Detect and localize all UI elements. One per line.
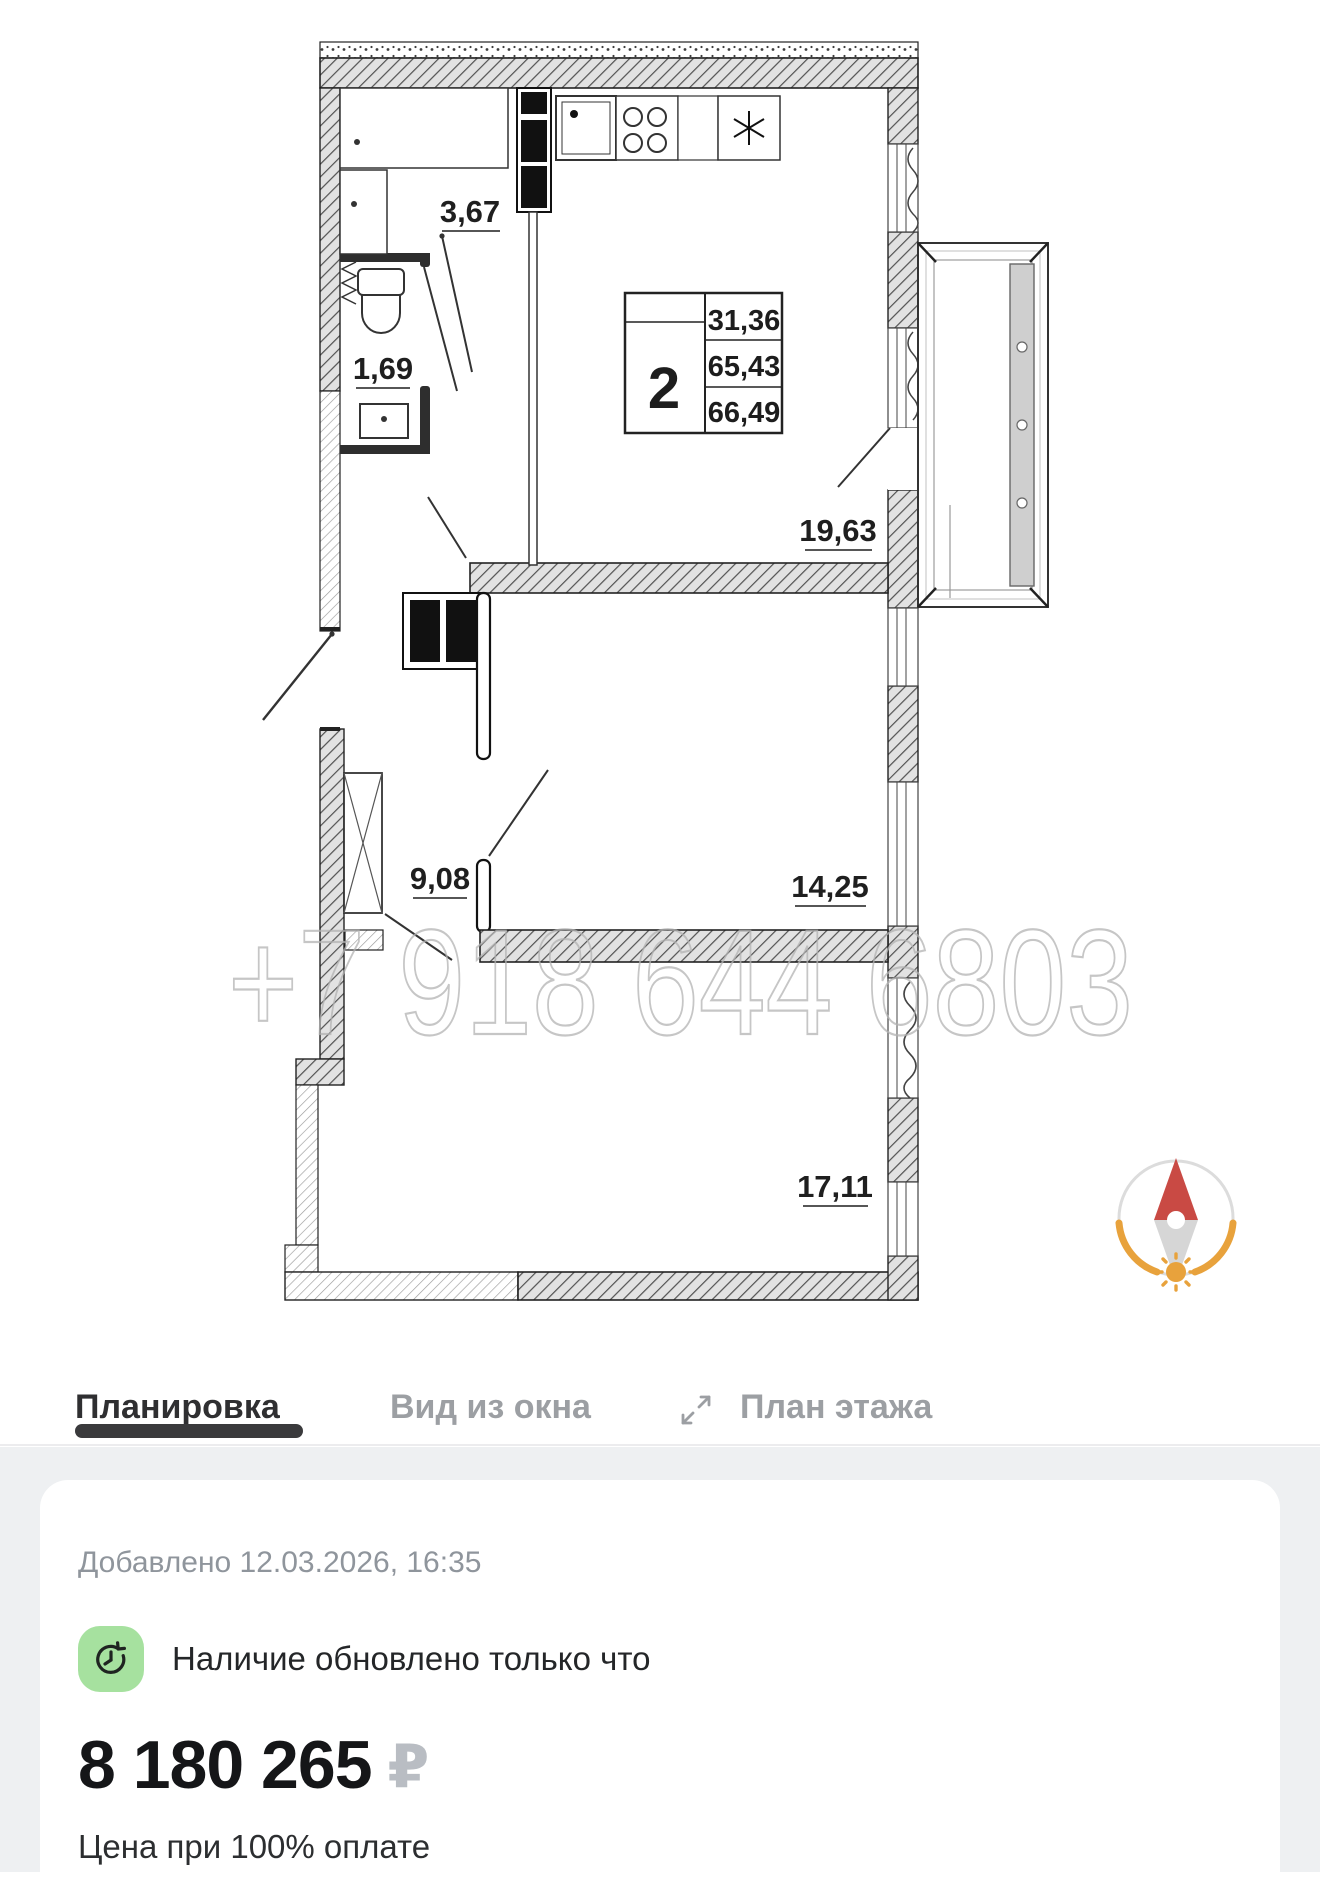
compass-icon	[1119, 1158, 1233, 1290]
price-value: 8 180 265	[78, 1732, 372, 1798]
listing-details-card: Добавлено 12.03.2026, 16:35 Наличие обно…	[40, 1480, 1280, 1880]
fridge-snowflake-icon	[718, 96, 780, 160]
balcony	[838, 243, 1048, 607]
sink-icon	[360, 404, 408, 438]
watermark-phone: +7 918 644 6803	[228, 898, 1133, 1066]
label-living-room: 19,63	[799, 513, 877, 548]
tab-window-view[interactable]: Вид из окна	[390, 1388, 591, 1427]
expand-icon[interactable]	[676, 1390, 716, 1430]
entrance-door	[263, 627, 340, 731]
tab-layout[interactable]: Планировка	[75, 1388, 280, 1427]
floor-plan-image[interactable]: 2 31,36 65,43 66,49 3,67 1,69 19,63 9,08…	[0, 0, 1320, 1368]
availability-updated-icon	[78, 1626, 144, 1692]
tab-floor-plan[interactable]: План этажа	[740, 1388, 932, 1427]
toilet-icon	[358, 269, 404, 333]
label-room-bottom: 17,11	[797, 1169, 873, 1204]
active-tab-indicator	[75, 1424, 303, 1438]
label-hallway: 9,08	[410, 861, 470, 896]
added-date-text: Добавлено 12.03.2026, 16:35	[78, 1546, 1242, 1580]
area-value-1: 31,36	[708, 305, 781, 337]
view-tabs: Планировка Вид из окна План этажа	[0, 1388, 1320, 1446]
area-value-3: 66,49	[708, 397, 781, 429]
stove-icon	[616, 96, 678, 160]
availability-text: Наличие обновлено только что	[172, 1640, 650, 1678]
plan-info-table: 2 31,36 65,43 66,49	[625, 293, 782, 433]
price-note: Цена при 100% оплате	[78, 1828, 1242, 1866]
label-bathroom: 1,69	[353, 351, 413, 386]
currency-symbol: ₽	[388, 1736, 430, 1798]
bottom-sheet-background: Добавлено 12.03.2026, 16:35 Наличие обно…	[0, 1447, 1320, 1872]
area-value-2: 65,43	[708, 351, 781, 383]
wardrobe-icon	[344, 773, 382, 913]
kitchen-sink-icon	[556, 96, 616, 160]
rooms-count: 2	[648, 356, 680, 421]
tabs-separator	[0, 1444, 1320, 1446]
label-hallway-top: 3,67	[440, 194, 500, 229]
availability-row: Наличие обновлено только что	[78, 1626, 1242, 1692]
kitchen-fixtures	[340, 88, 780, 254]
price-row: 8 180 265 ₽	[78, 1732, 1242, 1798]
